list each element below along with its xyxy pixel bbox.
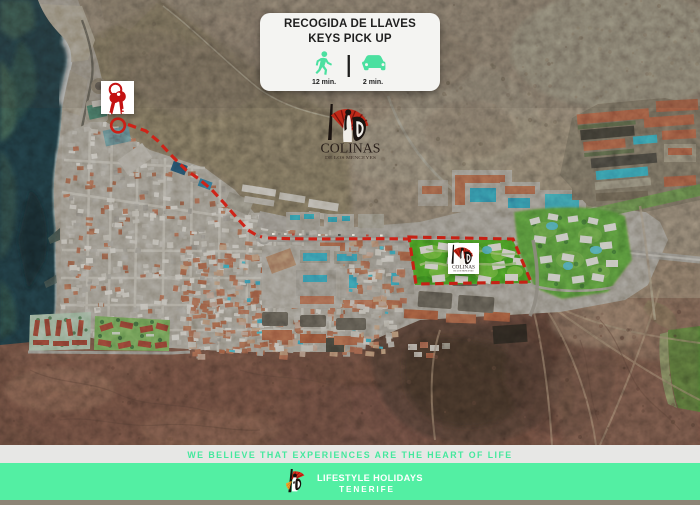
svg-text:COLINAS: COLINAS (321, 141, 381, 156)
svg-text:2 min.: 2 min. (363, 79, 383, 86)
svg-text:DE LOS MENCEYES: DE LOS MENCEYES (325, 155, 377, 160)
svg-text:DE LOS MENCEYES: DE LOS MENCEYES (454, 270, 475, 273)
svg-text:12 min.: 12 min. (312, 79, 336, 86)
